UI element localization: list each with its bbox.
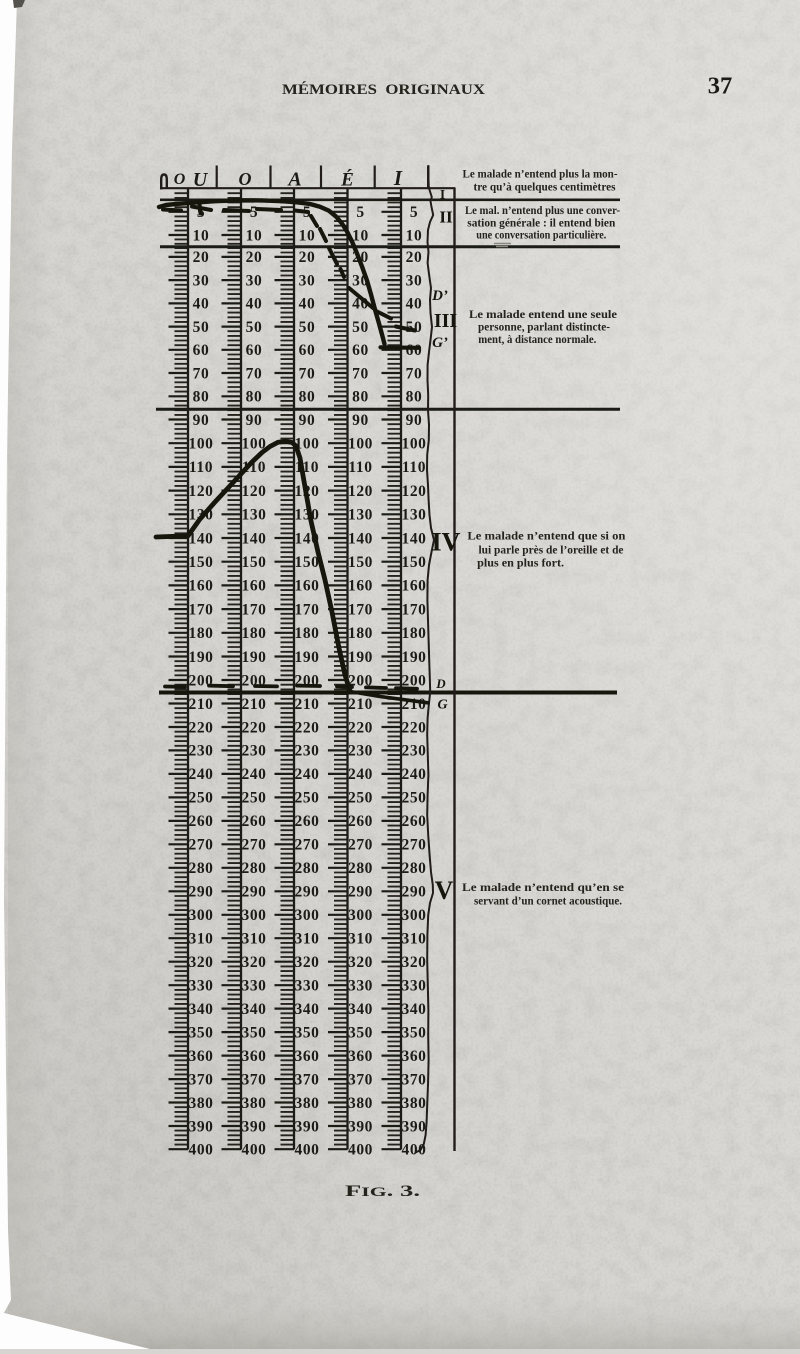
svg-text:400: 400 xyxy=(348,1142,373,1159)
svg-text:37: 37 xyxy=(708,73,733,100)
svg-text:290: 290 xyxy=(188,884,213,901)
svg-text:140: 140 xyxy=(401,530,426,547)
svg-text:170: 170 xyxy=(188,601,213,618)
svg-text:370: 370 xyxy=(241,1071,266,1088)
svg-text:360: 360 xyxy=(241,1048,266,1065)
svg-text:170: 170 xyxy=(294,601,319,618)
svg-text:G: G xyxy=(437,698,447,713)
svg-text:É: É xyxy=(340,169,354,191)
svg-text:80: 80 xyxy=(299,389,316,406)
svg-text:Le malade n’entend plus la mon: Le malade n’entend plus la mon- xyxy=(463,169,618,181)
svg-text:340: 340 xyxy=(401,1001,426,1018)
svg-text:80: 80 xyxy=(406,389,423,406)
svg-text:240: 240 xyxy=(294,766,319,783)
svg-text:220: 220 xyxy=(188,719,213,736)
svg-text:D: D xyxy=(435,676,446,691)
svg-text:300: 300 xyxy=(294,907,319,924)
svg-text:370: 370 xyxy=(348,1071,373,1088)
svg-text:III: III xyxy=(434,310,458,332)
svg-text:ment, à distance normale.: ment, à distance normale. xyxy=(478,334,596,346)
svg-text:310: 310 xyxy=(401,931,426,948)
svg-text:50: 50 xyxy=(352,319,369,336)
svg-text:70: 70 xyxy=(406,365,423,382)
svg-text:110: 110 xyxy=(402,459,426,476)
svg-text:160: 160 xyxy=(294,578,319,595)
svg-text:A: A xyxy=(286,169,301,191)
svg-text:260: 260 xyxy=(401,813,426,830)
svg-text:130: 130 xyxy=(401,507,426,524)
svg-text:320: 320 xyxy=(188,954,213,971)
svg-text:240: 240 xyxy=(401,766,426,783)
svg-text:5: 5 xyxy=(356,204,364,221)
svg-text:310: 310 xyxy=(241,931,266,948)
svg-text:380: 380 xyxy=(348,1095,373,1112)
svg-text:70: 70 xyxy=(299,365,316,382)
svg-text:270: 270 xyxy=(348,837,373,854)
svg-text:160: 160 xyxy=(348,578,373,595)
svg-text:100: 100 xyxy=(348,436,373,453)
svg-text:D’: D’ xyxy=(431,288,448,304)
svg-text:300: 300 xyxy=(188,907,213,924)
svg-text:20: 20 xyxy=(406,249,423,266)
svg-text:40: 40 xyxy=(193,296,210,313)
svg-text:270: 270 xyxy=(241,837,266,854)
svg-text:360: 360 xyxy=(348,1048,373,1065)
svg-text:290: 290 xyxy=(294,884,319,901)
svg-text:260: 260 xyxy=(294,813,319,830)
svg-text:30: 30 xyxy=(406,272,423,289)
svg-text:O: O xyxy=(239,169,252,189)
svg-text:110: 110 xyxy=(348,459,372,476)
svg-text:170: 170 xyxy=(401,601,426,618)
svg-text:250: 250 xyxy=(348,790,373,807)
svg-text:150: 150 xyxy=(188,554,213,571)
svg-text:220: 220 xyxy=(401,719,426,736)
svg-text:10: 10 xyxy=(193,227,210,244)
svg-text:380: 380 xyxy=(241,1095,266,1112)
svg-text:90: 90 xyxy=(193,412,210,429)
svg-text:Le malade n’entend qu’en se: Le malade n’entend qu’en se xyxy=(462,882,624,894)
svg-text:290: 290 xyxy=(241,884,266,901)
svg-text:300: 300 xyxy=(401,907,426,924)
svg-text:190: 190 xyxy=(401,649,426,666)
svg-text:340: 340 xyxy=(241,1001,266,1018)
svg-text:80: 80 xyxy=(352,389,369,406)
svg-text:220: 220 xyxy=(294,719,319,736)
svg-text:290: 290 xyxy=(401,884,426,901)
svg-text:90: 90 xyxy=(299,412,316,429)
svg-text:280: 280 xyxy=(241,860,266,877)
svg-text:320: 320 xyxy=(241,954,266,971)
svg-text:sation générale : il entend bi: sation générale : il entend bien xyxy=(467,217,616,229)
svg-text:310: 310 xyxy=(188,931,213,948)
svg-text:270: 270 xyxy=(294,837,319,854)
svg-text:10: 10 xyxy=(406,227,423,244)
svg-text:250: 250 xyxy=(241,790,266,807)
svg-text:160: 160 xyxy=(401,578,426,595)
svg-text:250: 250 xyxy=(294,790,319,807)
svg-text:130: 130 xyxy=(348,507,373,524)
svg-text:40: 40 xyxy=(406,296,423,313)
svg-text:190: 190 xyxy=(294,649,319,666)
svg-text:390: 390 xyxy=(348,1118,373,1135)
svg-text:30: 30 xyxy=(193,272,210,289)
svg-text:O: O xyxy=(174,171,186,188)
svg-text:390: 390 xyxy=(401,1118,426,1135)
svg-text:290: 290 xyxy=(348,884,373,901)
svg-text:230: 230 xyxy=(348,743,373,760)
svg-text:340: 340 xyxy=(348,1001,373,1018)
svg-text:180: 180 xyxy=(241,625,266,642)
svg-text:160: 160 xyxy=(241,578,266,595)
svg-text:50: 50 xyxy=(246,319,263,336)
svg-text:350: 350 xyxy=(294,1024,319,1041)
svg-text:II: II xyxy=(439,208,453,227)
svg-text:360: 360 xyxy=(294,1048,319,1065)
svg-text:20: 20 xyxy=(299,249,316,266)
svg-text:lui parle près de l’oreille et: lui parle près de l’oreille et de xyxy=(479,544,624,556)
svg-text:50: 50 xyxy=(299,319,316,336)
svg-text:340: 340 xyxy=(188,1001,213,1018)
svg-text:280: 280 xyxy=(401,860,426,877)
svg-text:330: 330 xyxy=(188,978,213,995)
svg-text:240: 240 xyxy=(241,766,266,783)
svg-text:60: 60 xyxy=(299,342,316,359)
svg-text:320: 320 xyxy=(348,954,373,971)
svg-text:390: 390 xyxy=(241,1118,266,1135)
svg-text:350: 350 xyxy=(348,1024,373,1041)
svg-text:140: 140 xyxy=(241,530,266,547)
svg-text:360: 360 xyxy=(188,1048,213,1065)
svg-text:90: 90 xyxy=(406,412,423,429)
svg-text:280: 280 xyxy=(294,860,319,877)
svg-text:130: 130 xyxy=(241,507,266,524)
svg-text:300: 300 xyxy=(241,907,266,924)
svg-text:180: 180 xyxy=(401,625,426,642)
svg-text:370: 370 xyxy=(401,1071,426,1088)
svg-text:personne, parlant distincte-: personne, parlant distincte- xyxy=(478,321,610,333)
svg-text:330: 330 xyxy=(294,978,319,995)
svg-text:370: 370 xyxy=(188,1071,213,1088)
svg-text:190: 190 xyxy=(241,649,266,666)
svg-text:120: 120 xyxy=(401,483,426,500)
svg-text:Le malade entend une seule: Le malade entend une seule xyxy=(469,309,617,321)
svg-text:300: 300 xyxy=(348,907,373,924)
svg-text:350: 350 xyxy=(401,1024,426,1041)
svg-text:380: 380 xyxy=(188,1095,213,1112)
svg-text:380: 380 xyxy=(294,1095,319,1112)
svg-text:220: 220 xyxy=(348,719,373,736)
svg-text:390: 390 xyxy=(294,1118,319,1135)
svg-text:30: 30 xyxy=(246,272,263,289)
svg-text:240: 240 xyxy=(188,766,213,783)
svg-text:230: 230 xyxy=(241,743,266,760)
svg-text:une conversation particulière.: une conversation particulière. xyxy=(476,230,606,242)
svg-text:100: 100 xyxy=(188,436,213,453)
svg-text:60: 60 xyxy=(193,342,210,359)
svg-text:400: 400 xyxy=(188,1142,213,1159)
svg-text:U: U xyxy=(193,169,209,191)
svg-text:40: 40 xyxy=(299,296,316,313)
svg-text:70: 70 xyxy=(352,365,369,382)
svg-text:IV: IV xyxy=(432,528,461,557)
svg-text:MÉMOIRES ORIGINAUX: MÉMOIRES ORIGINAUX xyxy=(282,81,485,98)
svg-text:20: 20 xyxy=(193,249,210,266)
svg-text:60: 60 xyxy=(246,342,263,359)
svg-text:340: 340 xyxy=(294,1001,319,1018)
svg-text:V: V xyxy=(435,876,454,905)
svg-text:120: 120 xyxy=(241,483,266,500)
svg-text:270: 270 xyxy=(401,837,426,854)
svg-text:180: 180 xyxy=(188,625,213,642)
svg-text:Le malade n’entend que si on: Le malade n’entend que si on xyxy=(467,530,626,542)
svg-text:150: 150 xyxy=(241,554,266,571)
svg-text:260: 260 xyxy=(241,813,266,830)
svg-text:210: 210 xyxy=(348,696,373,713)
svg-text:320: 320 xyxy=(401,954,426,971)
svg-text:80: 80 xyxy=(246,389,263,406)
svg-text:10: 10 xyxy=(352,227,369,244)
svg-text:20: 20 xyxy=(246,249,263,266)
svg-text:150: 150 xyxy=(401,554,426,571)
svg-text:400: 400 xyxy=(241,1142,266,1159)
svg-text:120: 120 xyxy=(348,483,373,500)
svg-text:tre qu’à quelques centimètres: tre qu’à quelques centimètres xyxy=(474,181,617,193)
svg-text:30: 30 xyxy=(299,272,316,289)
svg-text:310: 310 xyxy=(348,931,373,948)
svg-text:170: 170 xyxy=(241,601,266,618)
svg-text:270: 270 xyxy=(188,837,213,854)
svg-text:150: 150 xyxy=(294,554,319,571)
svg-text:140: 140 xyxy=(348,530,373,547)
svg-text:320: 320 xyxy=(294,954,319,971)
svg-text:I: I xyxy=(393,166,403,190)
svg-text:310: 310 xyxy=(294,931,319,948)
svg-text:10: 10 xyxy=(299,227,316,244)
svg-text:220: 220 xyxy=(241,719,266,736)
svg-text:170: 170 xyxy=(348,601,373,618)
svg-text:350: 350 xyxy=(188,1024,213,1041)
svg-text:10: 10 xyxy=(246,227,263,244)
svg-text:210: 210 xyxy=(188,696,213,713)
svg-text:40: 40 xyxy=(246,296,263,313)
svg-text:280: 280 xyxy=(348,860,373,877)
svg-text:250: 250 xyxy=(401,790,426,807)
svg-text:100: 100 xyxy=(401,436,426,453)
svg-text:210: 210 xyxy=(294,696,319,713)
svg-text:350: 350 xyxy=(241,1024,266,1041)
svg-text:360: 360 xyxy=(401,1048,426,1065)
svg-text:120: 120 xyxy=(188,483,213,500)
svg-text:230: 230 xyxy=(294,743,319,760)
svg-text:70: 70 xyxy=(193,365,210,382)
svg-text:330: 330 xyxy=(348,978,373,995)
svg-text:260: 260 xyxy=(188,813,213,830)
svg-text:90: 90 xyxy=(352,412,369,429)
svg-text:60: 60 xyxy=(406,342,423,359)
svg-text:230: 230 xyxy=(401,743,426,760)
svg-text:180: 180 xyxy=(294,625,319,642)
svg-text:80: 80 xyxy=(193,389,210,406)
svg-text:Le mal. n’entend plus une conv: Le mal. n’entend plus une conver- xyxy=(465,205,620,217)
svg-text:280: 280 xyxy=(188,860,213,877)
svg-text:330: 330 xyxy=(401,978,426,995)
svg-text:330: 330 xyxy=(241,978,266,995)
svg-text:plus en plus fort.: plus en plus fort. xyxy=(477,558,564,570)
svg-text:FIG. 3.: FIG. 3. xyxy=(345,1183,420,1200)
svg-text:380: 380 xyxy=(401,1095,426,1112)
svg-text:240: 240 xyxy=(348,766,373,783)
svg-text:I: I xyxy=(440,186,445,201)
svg-text:5: 5 xyxy=(410,204,418,221)
svg-text:60: 60 xyxy=(352,342,369,359)
svg-text:390: 390 xyxy=(188,1118,213,1135)
svg-text:180: 180 xyxy=(348,625,373,642)
svg-text:400: 400 xyxy=(294,1142,319,1159)
svg-text:5: 5 xyxy=(250,204,258,221)
svg-text:50: 50 xyxy=(193,319,210,336)
svg-text:150: 150 xyxy=(348,554,373,571)
svg-text:260: 260 xyxy=(348,813,373,830)
svg-text:210: 210 xyxy=(241,696,266,713)
svg-text:G’: G’ xyxy=(432,335,448,351)
svg-text:110: 110 xyxy=(189,459,213,476)
svg-text:160: 160 xyxy=(188,578,213,595)
svg-text:190: 190 xyxy=(348,649,373,666)
svg-text:370: 370 xyxy=(294,1071,319,1088)
svg-text:250: 250 xyxy=(188,790,213,807)
svg-text:70: 70 xyxy=(246,365,263,382)
svg-text:90: 90 xyxy=(246,412,263,429)
svg-text:servant d’un cornet acoustique: servant d’un cornet acoustique. xyxy=(474,896,622,908)
svg-text:230: 230 xyxy=(188,743,213,760)
svg-text:190: 190 xyxy=(188,649,213,666)
